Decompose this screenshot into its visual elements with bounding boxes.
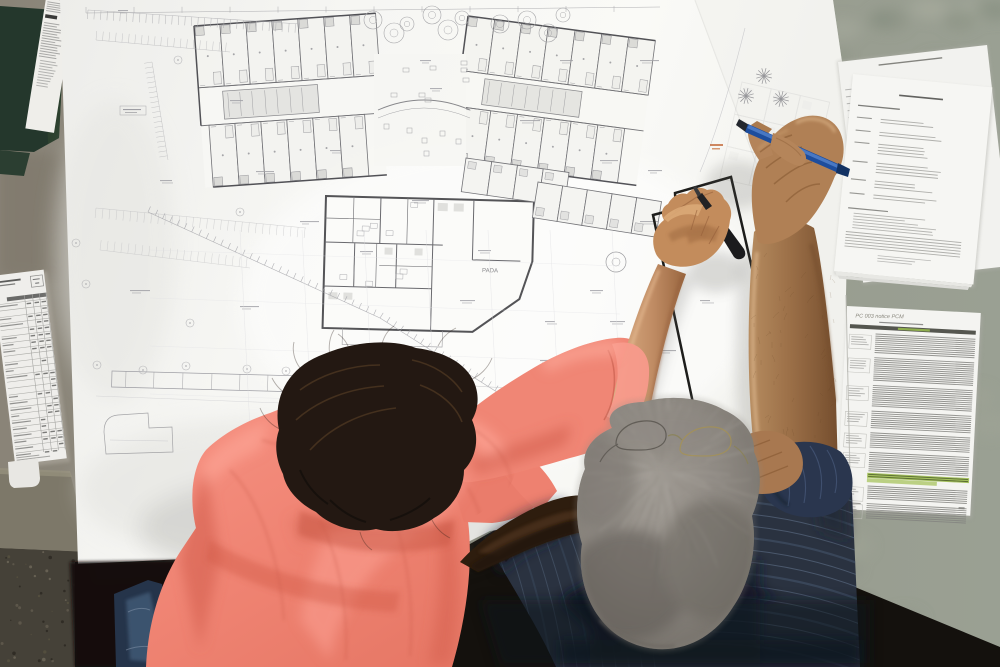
svg-text:PC 003 notice PCM: PC 003 notice PCM xyxy=(855,313,904,320)
